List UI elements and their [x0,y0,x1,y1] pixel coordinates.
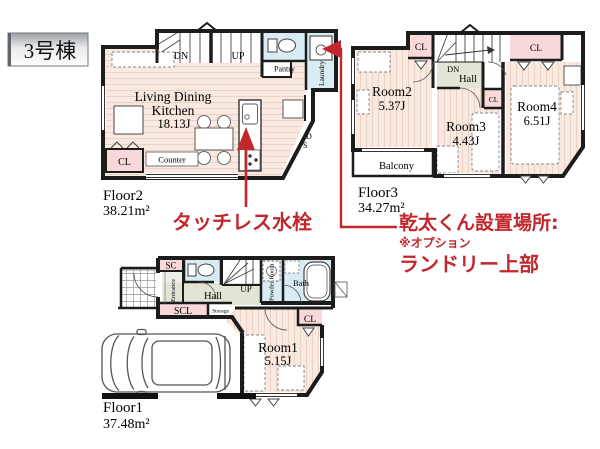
room2-label: Room2 [372,84,412,99]
room4-size: 6.51J [524,114,551,128]
dryer-title: 乾太くん設置場所: [399,211,559,234]
floor1-plan: UP [102,258,347,432]
floor3-cl-right-label: CL [530,44,542,54]
floor3-cl-mid-label: CL [489,95,499,104]
floor2-name: Floor2 [103,188,143,204]
room1-opening-marks [250,399,279,406]
ac-outdoor-unit [335,282,347,297]
floorplan-page: 3号棟 DN UP [0,0,600,449]
floor2-counter-label: Counter [158,155,186,165]
floor2-laundry-label: Laundry [317,60,326,86]
kitchen-sink-unit [239,100,261,171]
ldk-size-label: 18.13J [158,117,191,131]
building-title: 3号棟 [8,33,88,66]
toilet-icon-f1 [188,264,214,276]
toilet-icon-f2 [268,39,296,52]
building-title-edge [8,33,11,66]
floor3-name: Floor3 [358,185,398,201]
balcony-label: Balcony [379,161,415,172]
floor2-ds-d: D [306,132,312,141]
sc-label: SC [165,261,176,271]
parking-line-left [102,393,158,399]
floor1-hall-label: Hall [204,291,222,302]
car-topview [102,330,230,397]
entrance-porch [121,270,158,308]
floor2-cl-label: CL [118,157,131,168]
floor2-area: 38.21m² [103,204,150,219]
room4-label: Room4 [517,99,557,114]
building-title-label: 3号棟 [24,39,77,63]
parking-line-right [217,393,256,399]
room1-label: Room1 [258,340,298,355]
floor3-cl-left-label: CL [415,43,427,53]
floor3-dn-label: DN [447,64,459,74]
room2-size: 5.37J [379,99,406,113]
powder-room-label: Powder Room [269,264,276,301]
bath-label: Bath [293,278,310,288]
room4-shelf [564,66,581,85]
floor2-dn-label: DN [174,51,188,62]
sofa-island [114,106,143,134]
floor1-area: 37.48m² [103,417,150,432]
floor2-pantry-label: Pantry [274,65,295,74]
kitchen-counter-dashed [112,52,174,67]
scl-label: SCL [174,306,192,317]
floor3-area: 34.27m² [358,201,405,216]
floor1-cl-label: CL [304,315,316,325]
floor3-plan: CL CL CL DN Hall Room2 5.37J Room3 4.43J… [350,25,586,216]
dryer-note: ※オプション [399,235,471,250]
faucet-label: タッチレス水栓 [172,210,312,234]
room1-size: 5.15J [265,354,292,368]
floor3-hall-label: Hall [459,74,477,85]
bath-counter [285,261,299,273]
floorplan-canvas: 3号棟 DN UP [0,0,600,449]
floor2-ds-s: S [303,141,307,150]
entrance-label: Entrance [170,279,177,302]
floor2-up-label: UP [232,51,245,62]
storage-label: Storage [212,309,229,315]
room3-label: Room3 [446,119,486,134]
entrance-door-gap [156,273,160,297]
dryer-place: ランドリー上部 [399,252,539,276]
room3-size: 4.43J [453,134,480,148]
ldk-label-2: Kitchen [152,103,195,118]
ldk-label-1: Living Dining [135,89,212,104]
floor1-name: Floor1 [103,400,143,416]
floor3-stairs [437,33,508,62]
floor2-plan: DN UP CL Counter [100,23,336,219]
fridge-box [283,100,303,118]
